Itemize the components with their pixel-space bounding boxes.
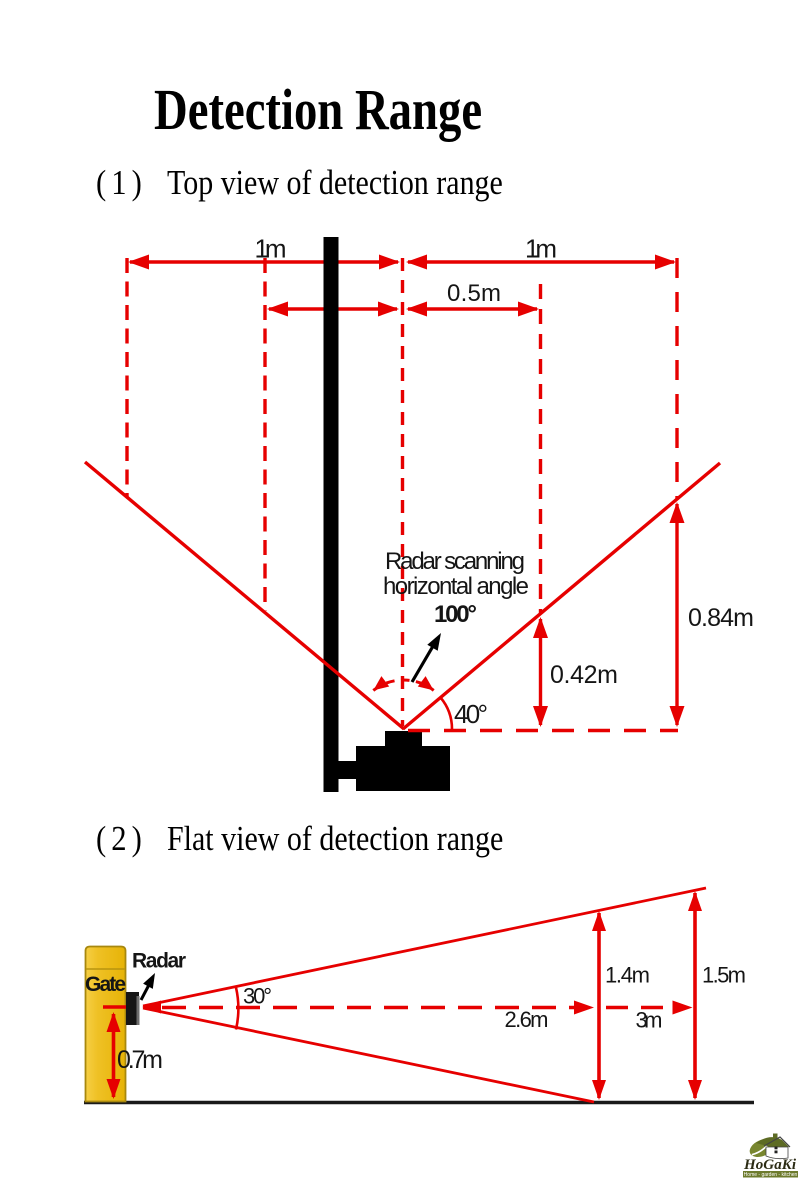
- svg-text:horizontal angle: horizontal angle: [383, 573, 529, 600]
- svg-text:Home - garden - kitchen: Home - garden - kitchen: [744, 1172, 798, 1178]
- svg-text:40°: 40°: [454, 699, 488, 729]
- svg-text:HoGaKi: HoGaKi: [743, 1157, 797, 1173]
- svg-text:Gate: Gate: [85, 973, 126, 996]
- svg-text:3m: 3m: [636, 1008, 663, 1033]
- svg-text:1m: 1m: [255, 234, 287, 264]
- svg-text:30°: 30°: [243, 984, 272, 1009]
- svg-text:Radar: Radar: [132, 950, 186, 973]
- svg-text:1.5m: 1.5m: [702, 963, 746, 988]
- svg-text:0.7m: 0.7m: [117, 1046, 163, 1074]
- svg-text:1.4m: 1.4m: [605, 963, 650, 988]
- svg-text:0.84m: 0.84m: [688, 604, 754, 632]
- svg-text:Radar scanning: Radar scanning: [385, 548, 525, 575]
- svg-text:0.5m: 0.5m: [447, 280, 501, 307]
- svg-text:1m: 1m: [525, 234, 557, 264]
- svg-text:0.42m: 0.42m: [550, 661, 618, 689]
- svg-text:2.6m: 2.6m: [505, 1007, 549, 1032]
- svg-text:100°: 100°: [434, 601, 477, 628]
